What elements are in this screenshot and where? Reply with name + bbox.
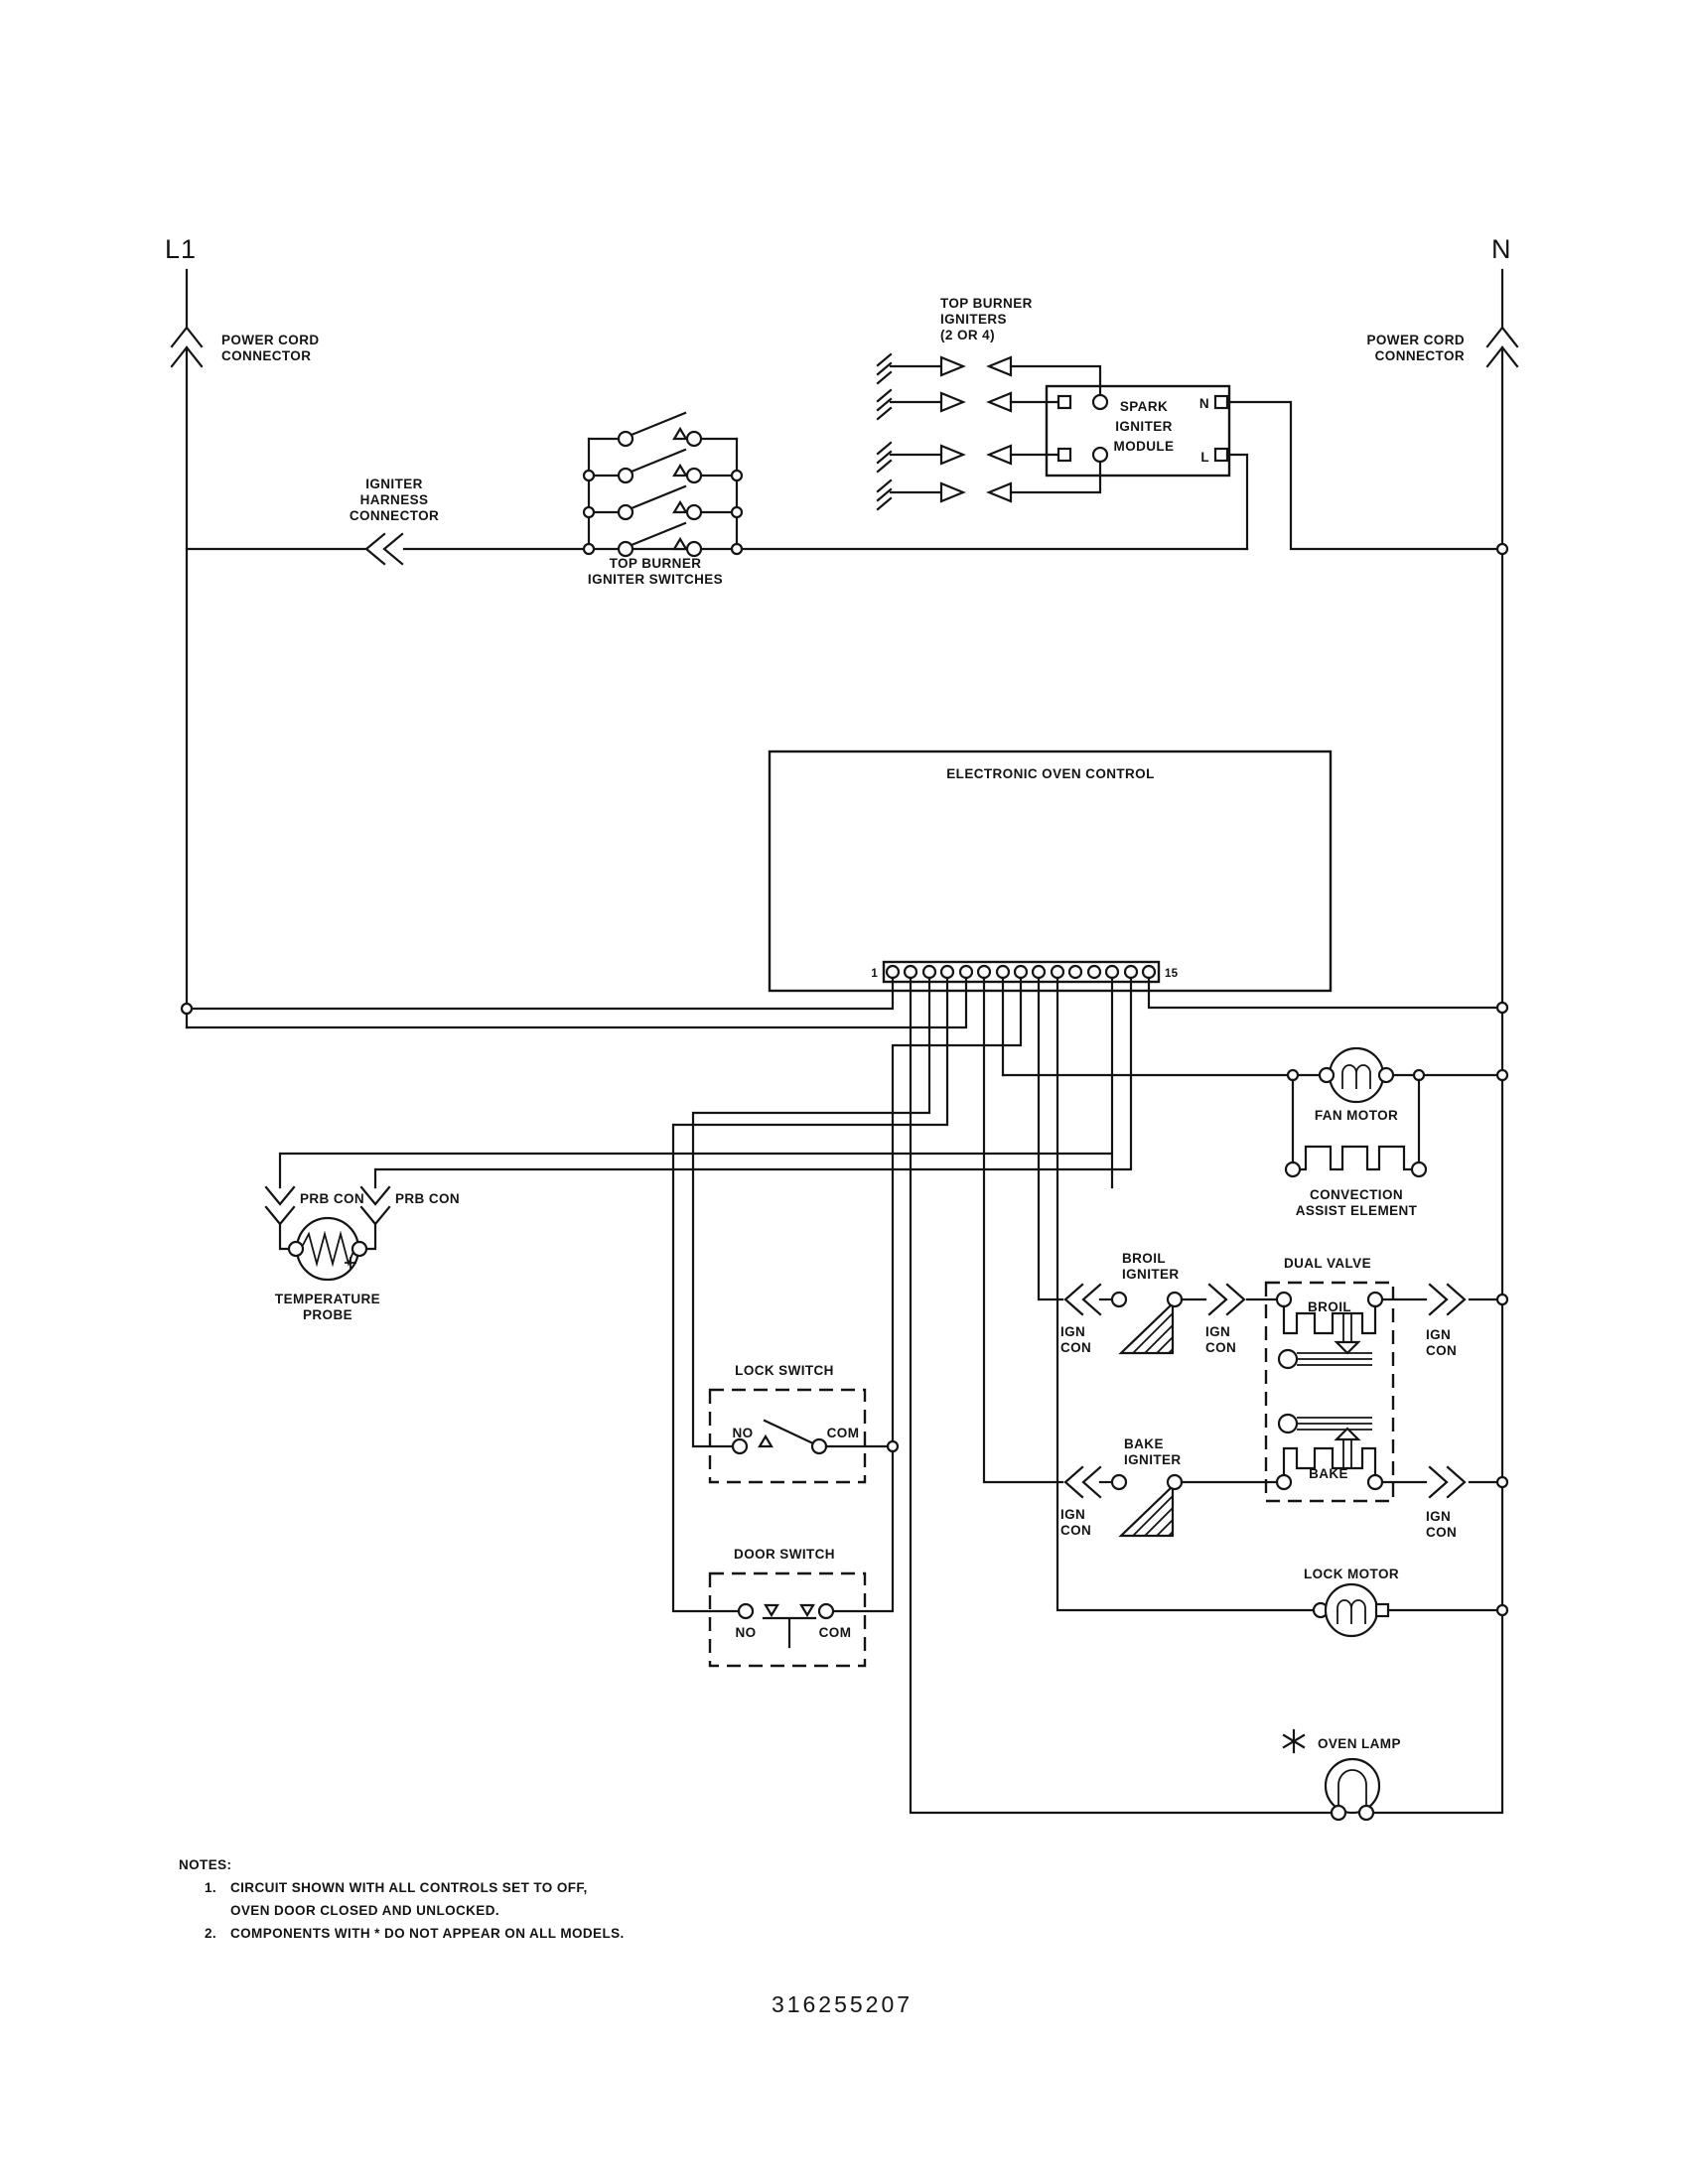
pin <box>887 966 899 978</box>
eoc-wires <box>182 978 1507 1813</box>
convection-label: ASSIST ELEMENT <box>1296 1203 1418 1218</box>
oven-lamp-icon <box>1326 1759 1379 1813</box>
terminal <box>687 432 701 446</box>
terminal <box>1112 1475 1126 1489</box>
terminal <box>819 1604 833 1618</box>
pin <box>1015 966 1027 978</box>
gas-valve-icon <box>1279 1350 1297 1368</box>
lock-motor-label: LOCK MOTOR <box>1304 1567 1399 1581</box>
ign-con-label: IGN <box>1060 1324 1085 1339</box>
switch-blade <box>765 1421 813 1443</box>
power-cord-connector-label: CONNECTOR <box>1375 348 1465 363</box>
terminal <box>1093 448 1107 462</box>
terminal <box>1359 1806 1373 1820</box>
igniter-row-4 <box>878 462 1100 509</box>
dual-valve-label: DUAL VALVE <box>1284 1256 1371 1271</box>
pin <box>1069 966 1081 978</box>
ground-icon <box>878 354 891 383</box>
terminal <box>619 505 633 519</box>
junction <box>1497 1605 1507 1615</box>
terminal <box>619 542 633 556</box>
terminal <box>1112 1293 1126 1306</box>
switch-actuator <box>760 1436 772 1446</box>
gas-valve-icon <box>1279 1415 1297 1433</box>
door-switch-label: DOOR SWITCH <box>734 1547 835 1562</box>
ign-con-label: CON <box>1426 1343 1457 1358</box>
note-2-number: 2. <box>205 1926 216 1941</box>
junction <box>1497 1295 1507 1304</box>
ign-con-label: IGN <box>1426 1327 1451 1342</box>
ign-con-label: CON <box>1426 1525 1457 1540</box>
oven-lamp-label: OVEN LAMP <box>1318 1736 1401 1751</box>
spark-gap-arrow-icon <box>941 483 963 501</box>
wire-module-n-to-neutral <box>1227 402 1497 549</box>
junction <box>1414 1070 1424 1080</box>
bake-valve-stem <box>1343 1439 1351 1468</box>
igniters-label: (2 OR 4) <box>940 328 995 342</box>
terminal <box>1058 396 1070 408</box>
ign-connector-icon <box>1430 1285 1465 1314</box>
bake-igniter-label: IGNITER <box>1124 1452 1182 1467</box>
wire-pin5-to-l1 <box>187 978 966 1027</box>
pin <box>923 966 935 978</box>
pin <box>941 966 953 978</box>
bake-igniter-label: BAKE <box>1124 1436 1164 1451</box>
gas-valve-lines <box>1297 1418 1372 1430</box>
ign-con-label: IGN <box>1060 1507 1085 1522</box>
oven-lamp-circuit: OVEN LAMP <box>1284 1730 1401 1820</box>
ign-con-label: CON <box>1060 1340 1091 1355</box>
pin-1-label: 1 <box>871 968 878 980</box>
com-label: COM <box>827 1426 860 1440</box>
junction <box>1288 1070 1298 1080</box>
fan-motor-circuit: FAN MOTOR CONVECTION ASSIST ELEMENT <box>1003 1048 1507 1218</box>
prb-con-label: PRB CON <box>300 1191 364 1206</box>
terminal <box>812 1439 826 1453</box>
wire <box>1011 366 1100 395</box>
pin <box>1088 966 1100 978</box>
igniter-harness-connector-label: CONNECTOR <box>350 508 439 523</box>
wiring-diagram-page: L1 POWER CORD CONNECTOR N POWER CORD CON… <box>0 0 1688 2184</box>
terminal <box>1368 1475 1382 1489</box>
igniter-row-3 <box>878 443 1058 472</box>
terminal <box>289 1242 303 1256</box>
lock-switch-label: LOCK SWITCH <box>735 1363 834 1378</box>
plunger-bar <box>764 1618 815 1647</box>
terminal <box>1286 1162 1300 1176</box>
terminal <box>352 1242 366 1256</box>
terminal <box>1093 395 1107 409</box>
wire-pin2-to-oven-lamp <box>911 978 1332 1813</box>
pin <box>978 966 990 978</box>
terminal <box>1320 1068 1334 1082</box>
spark-gap-arrow-icon <box>989 483 1011 501</box>
eoc-title: ELECTRONIC OVEN CONTROL <box>946 766 1154 781</box>
probe-body-icon <box>297 1218 358 1280</box>
temperature-probe-circuit: PRB CON PRB CON TEMPERATURE PROBE <box>266 1187 460 1322</box>
terminal <box>1376 1604 1388 1616</box>
broil-igniter-label: BROIL <box>1122 1251 1166 1266</box>
heating-element-icon <box>1300 1147 1412 1169</box>
broil-valve-stem <box>1343 1313 1351 1342</box>
n-label: N <box>1491 234 1512 264</box>
pin <box>1125 966 1137 978</box>
prb-connector-icon <box>266 1187 294 1224</box>
terminal <box>1168 1293 1182 1306</box>
junction <box>1497 1003 1507 1013</box>
door-switch: DOOR SWITCH NO COM <box>710 1547 865 1666</box>
note-1-line-1: CIRCUIT SHOWN WITH ALL CONTROLS SET TO O… <box>230 1880 588 1895</box>
terminal <box>687 542 701 556</box>
convection-label: CONVECTION <box>1310 1187 1403 1202</box>
l1-power-rail: L1 POWER CORD CONNECTOR <box>165 234 320 1027</box>
wire-pin4-to-door-switch <box>673 978 947 1611</box>
ign-connector-icon <box>1065 1467 1100 1497</box>
terminal <box>1368 1293 1382 1306</box>
lock-switch: LOCK SWITCH NO COM <box>710 1363 888 1482</box>
l1-label: L1 <box>165 234 197 264</box>
wire <box>1011 462 1100 492</box>
wire-pin6-to-bake-igniter <box>984 978 1062 1482</box>
wire-pin8-to-com <box>893 978 1021 1446</box>
pin <box>1033 966 1045 978</box>
eoc-box <box>770 751 1331 991</box>
dual-valve: DUAL VALVE BROIL BAKE <box>1266 1256 1393 1501</box>
note-1-line-2: OVEN DOOR CLOSED AND UNLOCKED. <box>230 1903 499 1918</box>
notes: NOTES: 1. CIRCUIT SHOWN WITH ALL CONTROL… <box>179 1857 625 1941</box>
power-cord-connector-label: POWER CORD <box>1367 333 1466 347</box>
spark-gap-arrow-icon <box>941 446 963 464</box>
door-switch-box <box>710 1573 865 1666</box>
spark-gap-arrow-icon <box>989 357 1011 375</box>
ign-con-label: CON <box>1060 1523 1091 1538</box>
module-label: SPARK <box>1120 399 1168 414</box>
igniter-row-1 <box>878 354 1100 395</box>
wiring-diagram: L1 POWER CORD CONNECTOR N POWER CORD CON… <box>0 0 1688 2184</box>
pin-15-label: 15 <box>1165 968 1179 980</box>
note-1-number: 1. <box>205 1880 216 1895</box>
terminal <box>733 1439 747 1453</box>
junction <box>732 544 742 554</box>
terminal-n <box>1215 396 1227 408</box>
fan-motor-label: FAN MOTOR <box>1315 1108 1398 1123</box>
com-label: COM <box>819 1625 852 1640</box>
spark-gap-arrow-icon <box>941 393 963 411</box>
pin <box>905 966 916 978</box>
terminal <box>687 469 701 482</box>
wire-com-to-door-switch <box>833 1451 893 1611</box>
junction <box>1497 1070 1507 1080</box>
wire-switch-stubs <box>589 439 737 512</box>
prb-connector-icon <box>361 1187 389 1224</box>
temperature-probe-label: TEMPERATURE <box>275 1292 380 1306</box>
bake-valve-label: BAKE <box>1309 1466 1348 1481</box>
module-n-label: N <box>1199 396 1209 411</box>
top-burner-igniter-switches: TOP BURNER IGNITER SWITCHES <box>584 413 742 587</box>
module-label: MODULE <box>1114 439 1175 454</box>
spark-gap-arrow-icon <box>989 446 1011 464</box>
module-label: IGNITER <box>1115 419 1173 434</box>
junction <box>182 1004 192 1014</box>
no-label: NO <box>732 1426 753 1440</box>
pin <box>1143 966 1155 978</box>
terminal <box>1332 1806 1345 1820</box>
terminal <box>1277 1475 1291 1489</box>
prb-con-label: PRB CON <box>395 1191 460 1206</box>
pin <box>997 966 1009 978</box>
terminal <box>739 1604 753 1618</box>
terminal <box>687 505 701 519</box>
note-2-line-1: COMPONENTS WITH * DO NOT APPEAR ON ALL M… <box>230 1926 625 1941</box>
terminal <box>619 432 633 446</box>
asterisk-icon <box>1284 1730 1304 1752</box>
junction <box>584 471 594 480</box>
ign-connector-icon <box>1430 1467 1465 1497</box>
pin <box>1052 966 1063 978</box>
pin <box>960 966 972 978</box>
igniter-row-2 <box>878 390 1058 419</box>
broil-valve-arrow-icon <box>1336 1342 1358 1353</box>
terminal <box>1058 449 1070 461</box>
junction <box>1497 1477 1507 1487</box>
igniter-harness-connector-label: HARNESS <box>360 492 429 507</box>
ground-icon <box>878 443 891 472</box>
gas-valve-lines <box>1297 1353 1372 1365</box>
lock-motor-circuit: LOCK MOTOR <box>1304 1567 1507 1636</box>
junction <box>584 507 594 517</box>
switch-actuators <box>766 1605 813 1615</box>
junction <box>888 1441 898 1451</box>
terminal <box>1379 1068 1393 1082</box>
wire-pin9-to-broil-igniter <box>1039 978 1062 1299</box>
junction <box>732 471 742 480</box>
spark-gap-arrow-icon <box>941 357 963 375</box>
part-number: 316255207 <box>772 1991 913 2017</box>
wire-pin10-to-lock-motor <box>1057 978 1314 1610</box>
wire-pin15-to-neutral <box>1149 978 1502 1008</box>
igniter-harness-connector-label: IGNITER <box>365 477 423 491</box>
ign-con-label: CON <box>1205 1340 1236 1355</box>
junction <box>584 544 594 554</box>
terminal-l <box>1215 449 1227 461</box>
ground-icon <box>878 480 891 509</box>
ign-connector-icon <box>1065 1285 1100 1314</box>
spark-gap-arrow-icon <box>989 393 1011 411</box>
notes-heading: NOTES: <box>179 1857 231 1872</box>
ign-con-label: IGN <box>1426 1509 1451 1524</box>
switches-label: TOP BURNER <box>610 556 702 571</box>
spark-igniter-module: SPARK IGNITER MODULE N L <box>1047 386 1507 554</box>
broil-igniter-label: IGNITER <box>1122 1267 1180 1282</box>
ign-connector-icon <box>1209 1285 1244 1314</box>
power-cord-connector-label: CONNECTOR <box>221 348 311 363</box>
terminal <box>1168 1475 1182 1489</box>
terminal <box>1277 1293 1291 1306</box>
power-cord-connector-label: POWER CORD <box>221 333 320 347</box>
wire-n-vertical <box>1373 347 1502 1813</box>
junction <box>732 507 742 517</box>
terminal <box>619 469 633 482</box>
igniters-label: TOP BURNER <box>940 296 1033 311</box>
no-label: NO <box>735 1625 756 1640</box>
wire-pin1-to-l1 <box>187 978 893 1009</box>
l1-main-line: IGNITER HARNESS CONNECTOR <box>187 477 1247 564</box>
ign-con-label: IGN <box>1205 1324 1230 1339</box>
temperature-probe-label: PROBE <box>303 1307 352 1322</box>
ground-icon <box>878 390 891 419</box>
pin <box>1106 966 1118 978</box>
module-l-label: L <box>1200 450 1209 465</box>
igniters-label: IGNITERS <box>940 312 1007 327</box>
switches-label: IGNITER SWITCHES <box>588 572 723 587</box>
igniter-harness-connector-icon <box>366 534 402 564</box>
terminal <box>1412 1162 1426 1176</box>
electronic-oven-control: ELECTRONIC OVEN CONTROL 1 15 <box>770 751 1331 991</box>
broil-valve-label: BROIL <box>1308 1299 1351 1314</box>
junction <box>1497 544 1507 554</box>
